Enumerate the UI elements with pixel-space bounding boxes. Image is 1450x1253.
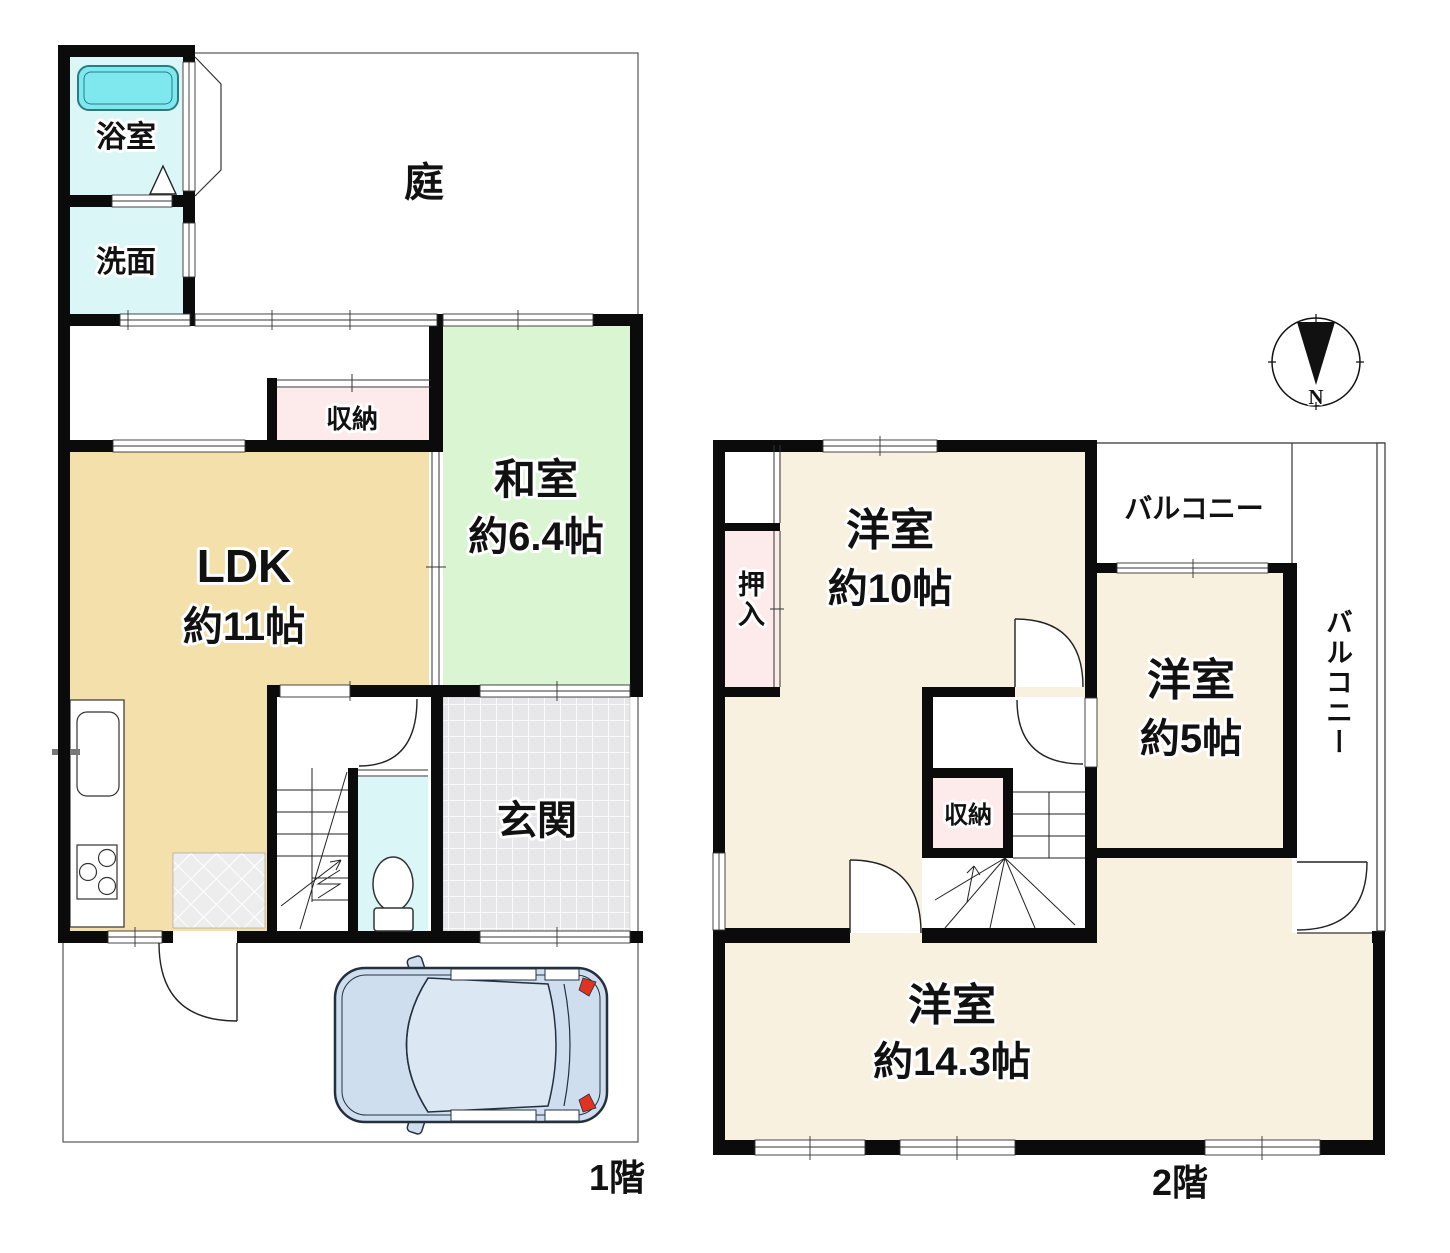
label-garden: 庭: [404, 161, 444, 205]
label-washitsu-size: 約6.4帖: [468, 515, 604, 559]
floor1-plan: 浴室 洗面 庭 収納 LDK 約11帖 和室 約6.4帖 玄関 1階: [52, 45, 645, 1198]
car: [335, 955, 607, 1135]
label-room10-size: 約10帖: [828, 567, 953, 611]
label-genkan: 玄関: [497, 799, 577, 843]
label-room5: 洋室: [1147, 655, 1235, 705]
kitchen-mat: [173, 853, 265, 928]
label-oshiire: 押入: [734, 570, 765, 630]
label-bath: 浴室: [96, 120, 156, 154]
label-ldk: LDK: [197, 540, 292, 592]
label-room14: 洋室: [908, 980, 996, 1030]
bathtub: [78, 66, 178, 110]
room-washitsu: [443, 326, 630, 685]
label-room5-size: 約5帖: [1140, 717, 1242, 761]
label-ldk-size: 約11帖: [183, 605, 305, 649]
floorplan-page: 浴室 洗面 庭 収納 LDK 約11帖 和室 約6.4帖 玄関 1階: [0, 0, 1450, 1253]
label-storage-2f: 収納: [944, 801, 992, 829]
label-floor2: 2階: [1152, 1162, 1208, 1203]
compass: N: [1268, 314, 1364, 410]
floorplan-drawing: 浴室 洗面 庭 収納 LDK 約11帖 和室 約6.4帖 玄関 1階: [0, 0, 1450, 1253]
label-storage-1f: 収納: [326, 404, 378, 434]
label-washitsu: 和室: [494, 456, 578, 503]
floor2-plan: 押入 洋室 約10帖 バルコニー 洋室 約5帖 バルコニー 収納 洋室 約14.…: [713, 436, 1385, 1203]
label-washroom: 洗面: [96, 246, 156, 279]
label-balcony-top: バルコニー: [1124, 493, 1263, 524]
label-room14-size: 約14.3帖: [873, 1040, 1031, 1084]
closet-2f: [725, 445, 779, 531]
label-balcony-side: バルコニー: [1322, 608, 1352, 758]
label-room10: 洋室: [846, 505, 934, 555]
toilet-fixture: [373, 857, 413, 931]
label-north: N: [1308, 385, 1323, 409]
label-floor1: 1階: [589, 1157, 645, 1198]
